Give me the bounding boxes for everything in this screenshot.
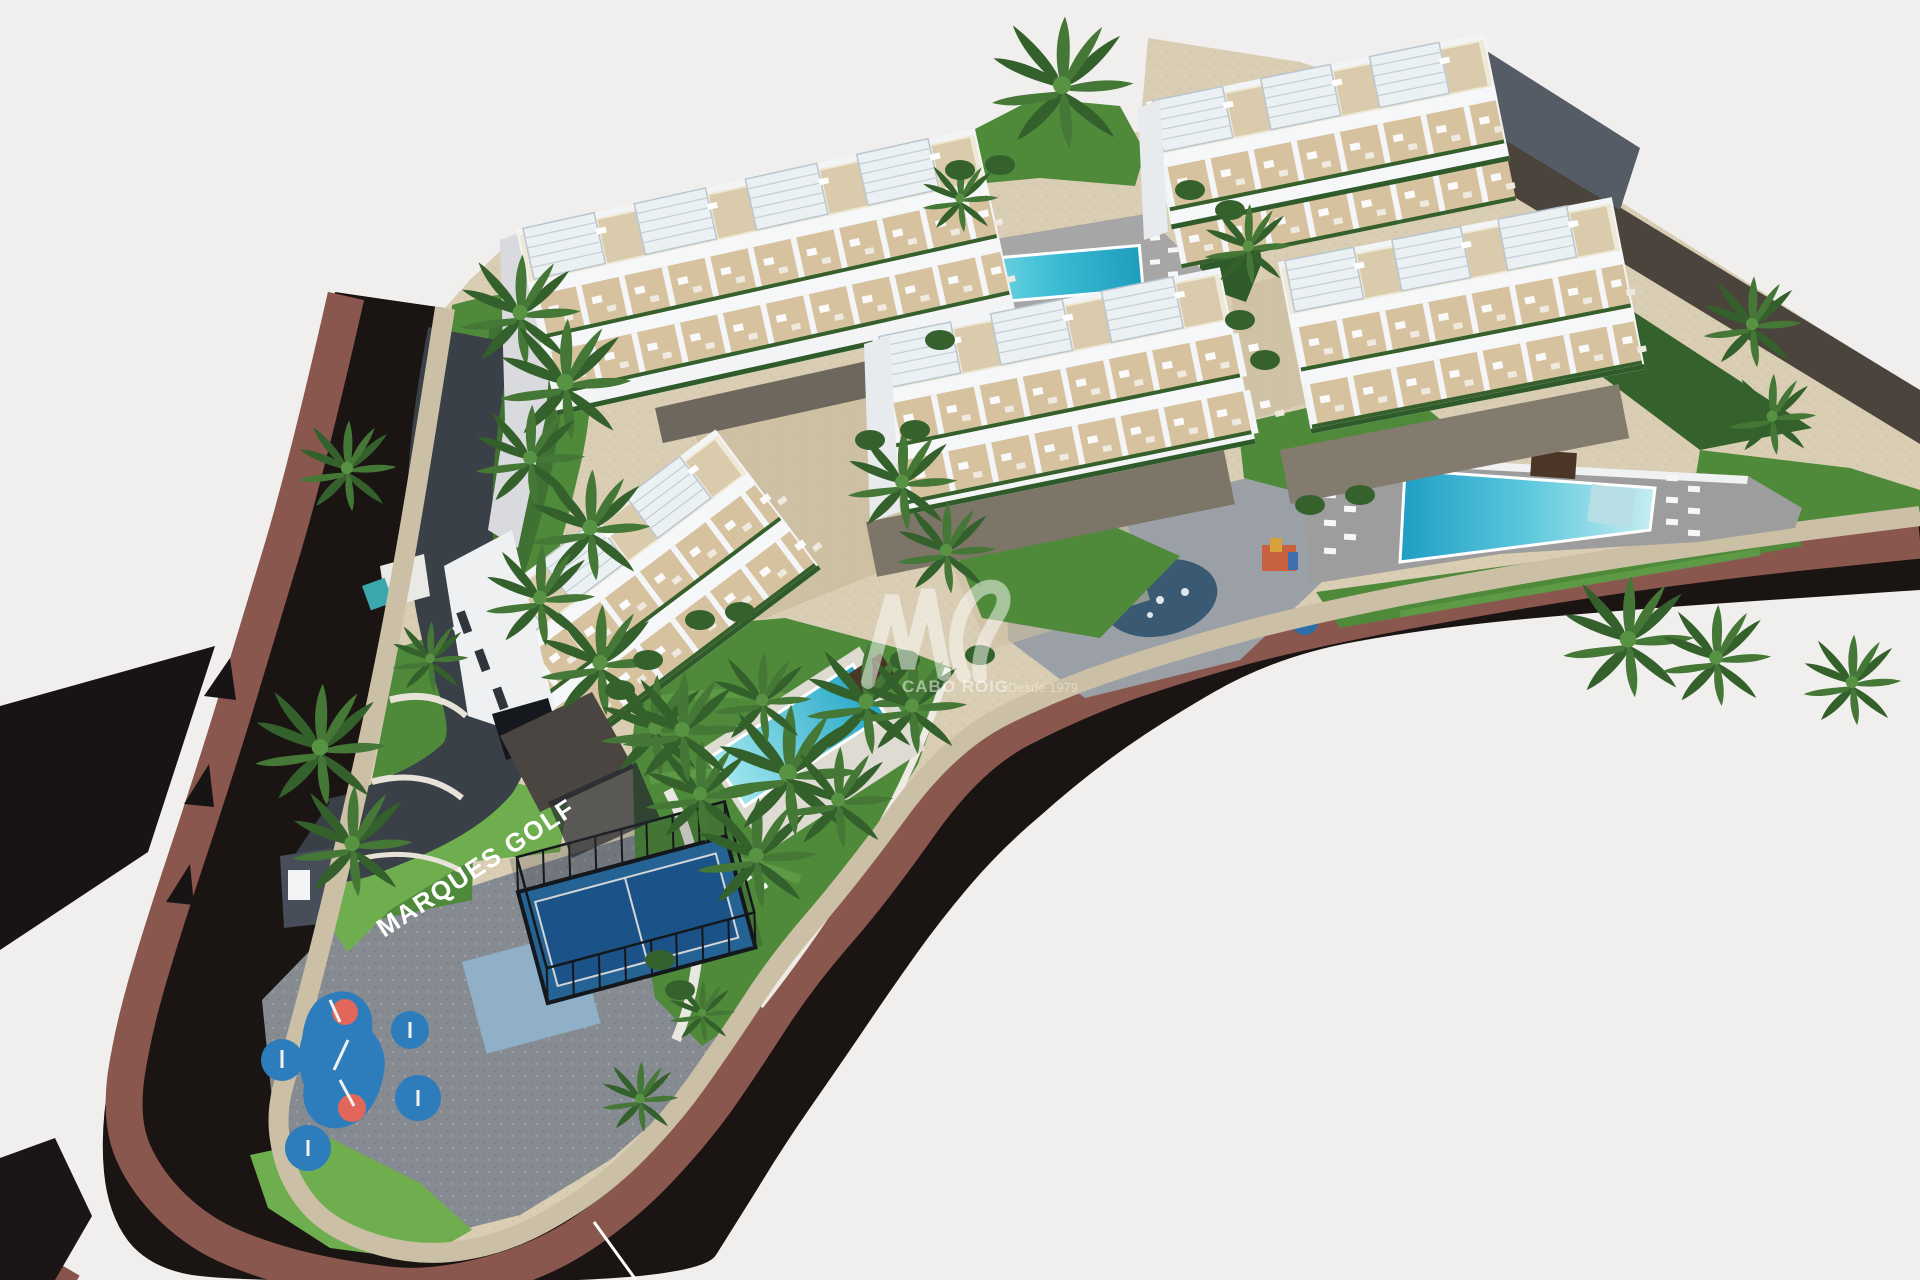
svg-text:Desde 1979: Desde 1979	[1008, 680, 1078, 695]
svg-text:CABO ROIG: CABO ROIG	[902, 677, 1009, 696]
